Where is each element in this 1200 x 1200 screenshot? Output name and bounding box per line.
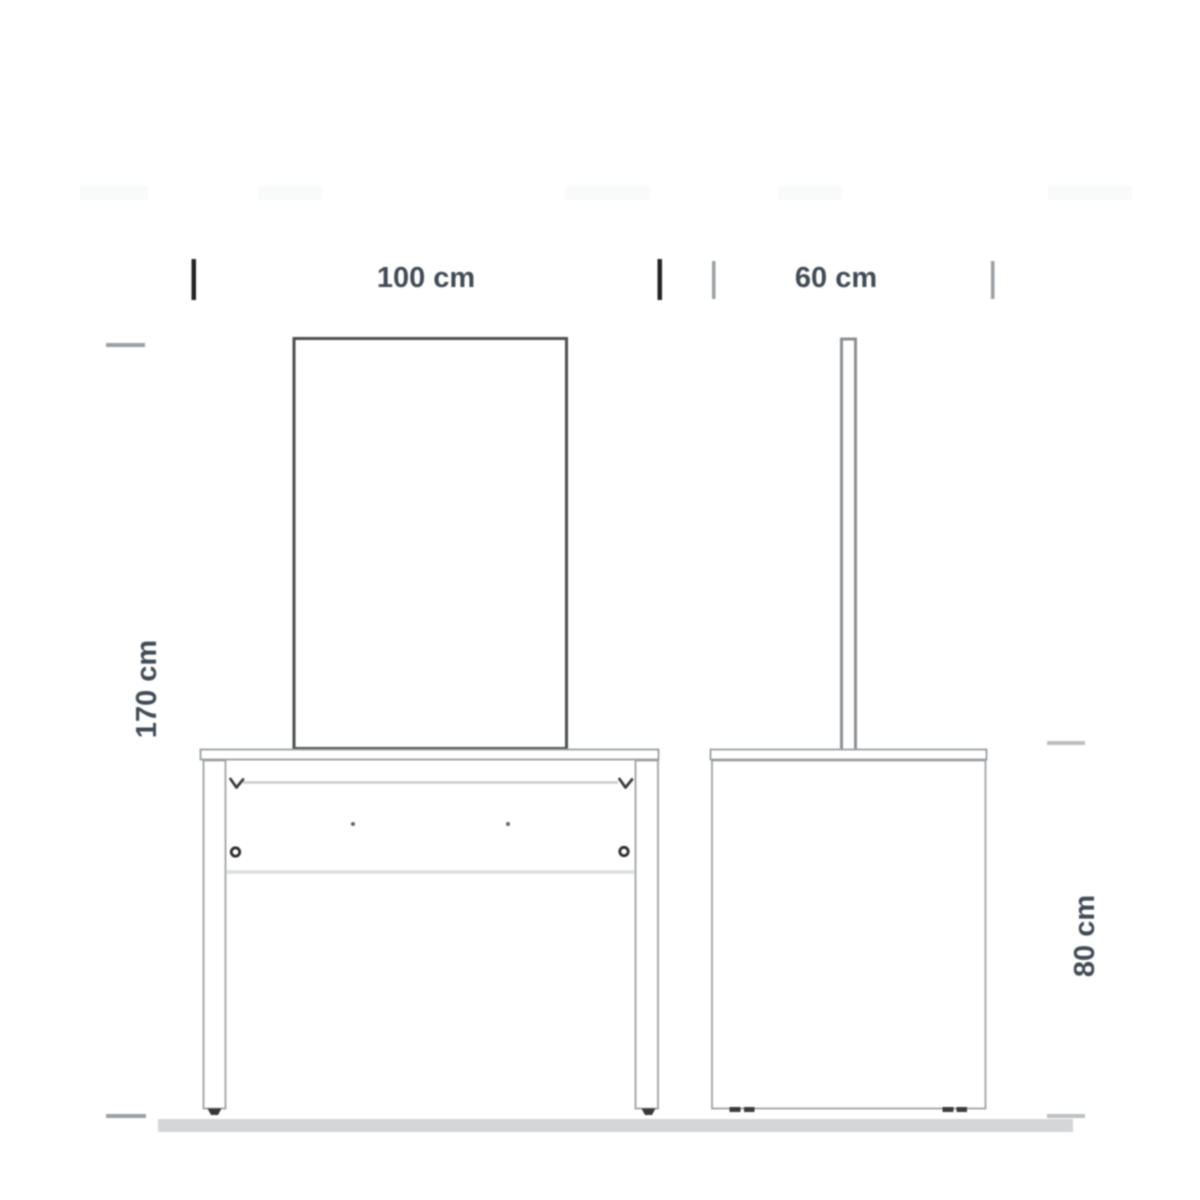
svg-text:80 cm: 80 cm [1069, 895, 1101, 977]
svg-text:170 cm: 170 cm [131, 640, 163, 738]
svg-text:100 cm: 100 cm [377, 262, 475, 294]
svg-text:60 cm: 60 cm [795, 262, 877, 294]
